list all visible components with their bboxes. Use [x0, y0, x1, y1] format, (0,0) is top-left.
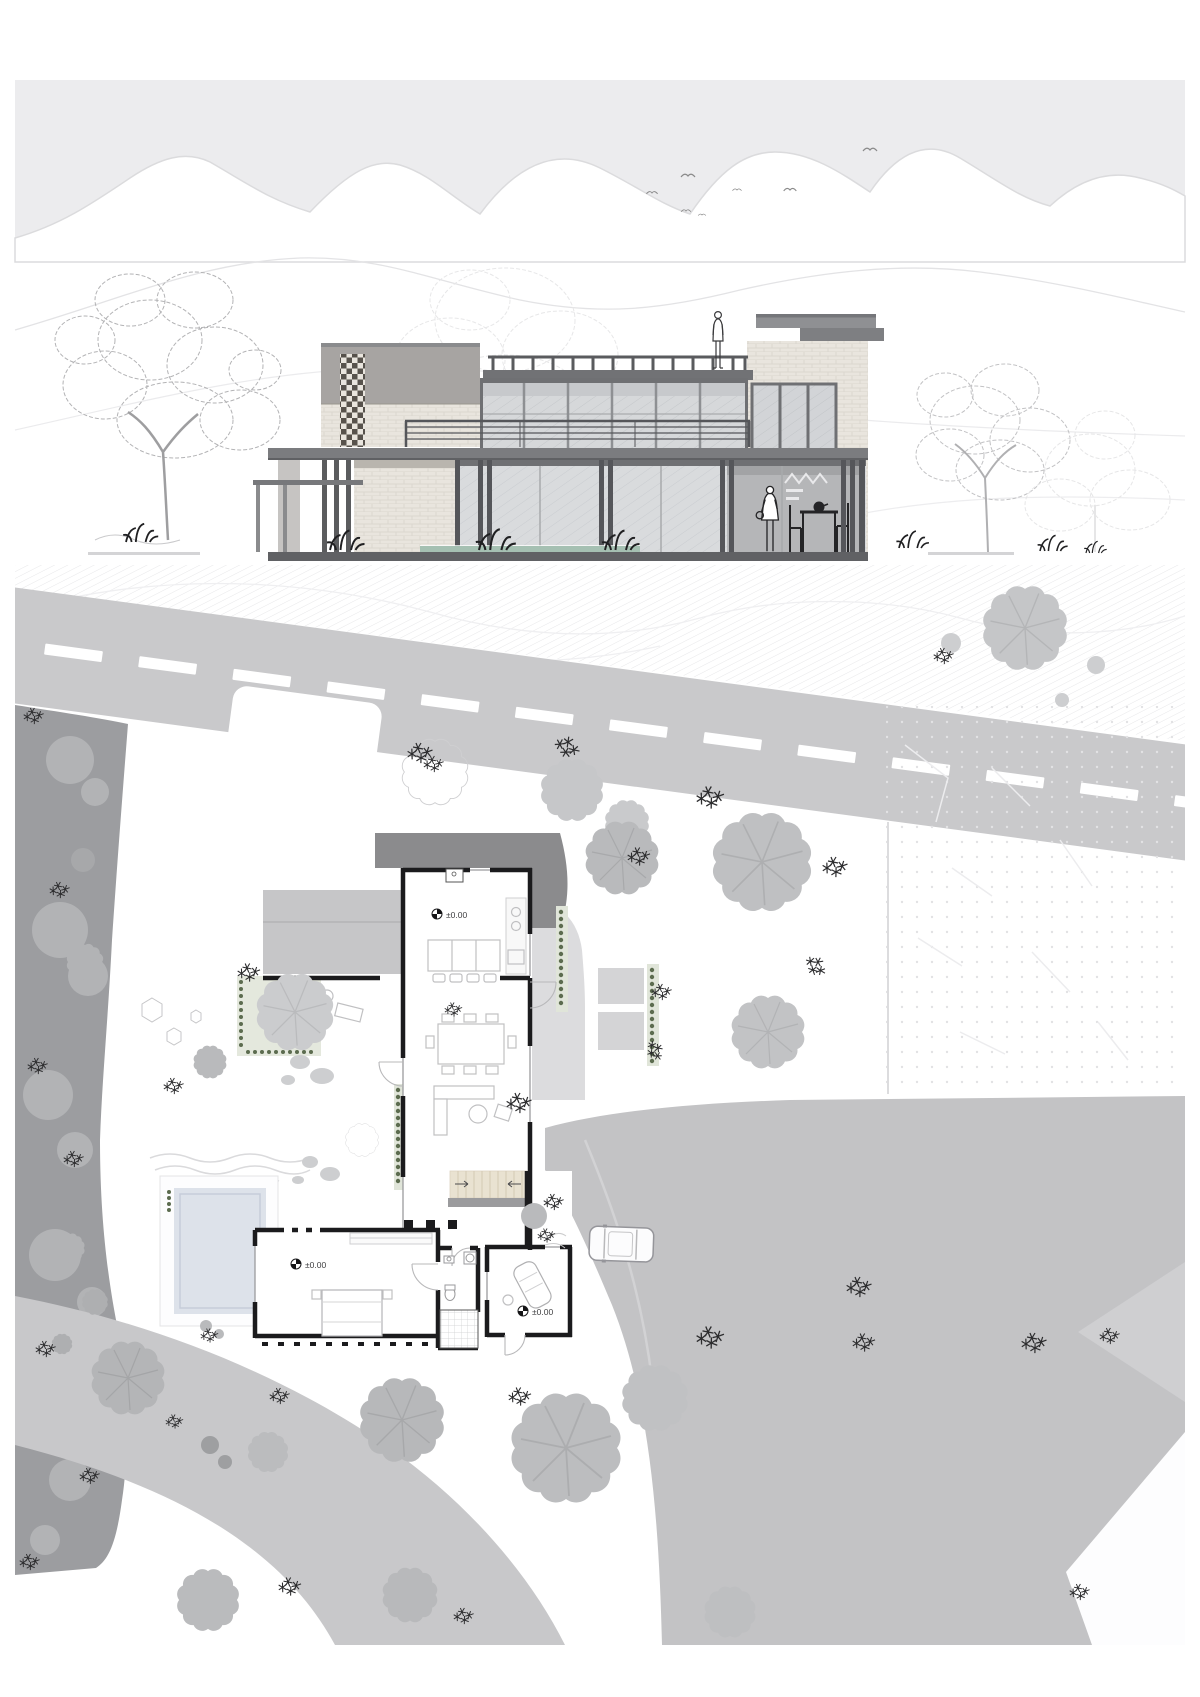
building-elevation — [88, 312, 1107, 561]
elevation-view — [15, 80, 1185, 561]
sink — [446, 869, 463, 882]
mountain-ridge-4 — [830, 497, 1185, 520]
pool — [174, 1188, 266, 1314]
staircase — [448, 1171, 527, 1207]
level-marker-bedroom: ±0.00 — [291, 1259, 326, 1270]
presentation-board: ±0.00 ±0.00 ±0.00 — [0, 0, 1200, 1697]
garden-pad — [598, 968, 644, 1004]
left-brick-volume — [321, 343, 480, 447]
architectural-drawing: ±0.00 ±0.00 ±0.00 — [0, 0, 1200, 1697]
floor-slab — [268, 448, 868, 458]
terrace-deck — [263, 890, 403, 974]
upper-window — [752, 384, 836, 454]
bed — [322, 1290, 382, 1336]
level-marker-kitchen: ±0.00 — [432, 909, 467, 920]
garden-pad — [598, 1012, 644, 1050]
tree-sketch-left — [55, 272, 281, 544]
ground-line — [88, 546, 1014, 561]
tree-sketch-right — [916, 364, 1070, 552]
water-edge — [420, 546, 640, 552]
mountain-ridge-2 — [15, 258, 1185, 330]
level-label-study: ±0.00 — [532, 1307, 553, 1317]
level-label-bedroom: ±0.00 — [305, 1260, 326, 1270]
shower — [440, 1310, 478, 1348]
level-marker-study: ±0.00 — [518, 1306, 553, 1317]
kitchen-island — [428, 940, 500, 971]
perforated-brick-screen — [340, 354, 365, 447]
background-tree-sketch-right — [1025, 411, 1170, 552]
site-plan-view: ±0.00 ±0.00 ±0.00 — [0, 565, 1200, 1645]
ground-floor-glazing — [455, 460, 866, 552]
sofa — [434, 1086, 494, 1099]
car — [589, 1224, 654, 1264]
dining-table — [438, 1024, 504, 1064]
counter — [506, 898, 526, 974]
porch-wing — [253, 460, 455, 552]
level-label-kitchen: ±0.00 — [446, 910, 467, 920]
roof-railing — [483, 357, 753, 380]
